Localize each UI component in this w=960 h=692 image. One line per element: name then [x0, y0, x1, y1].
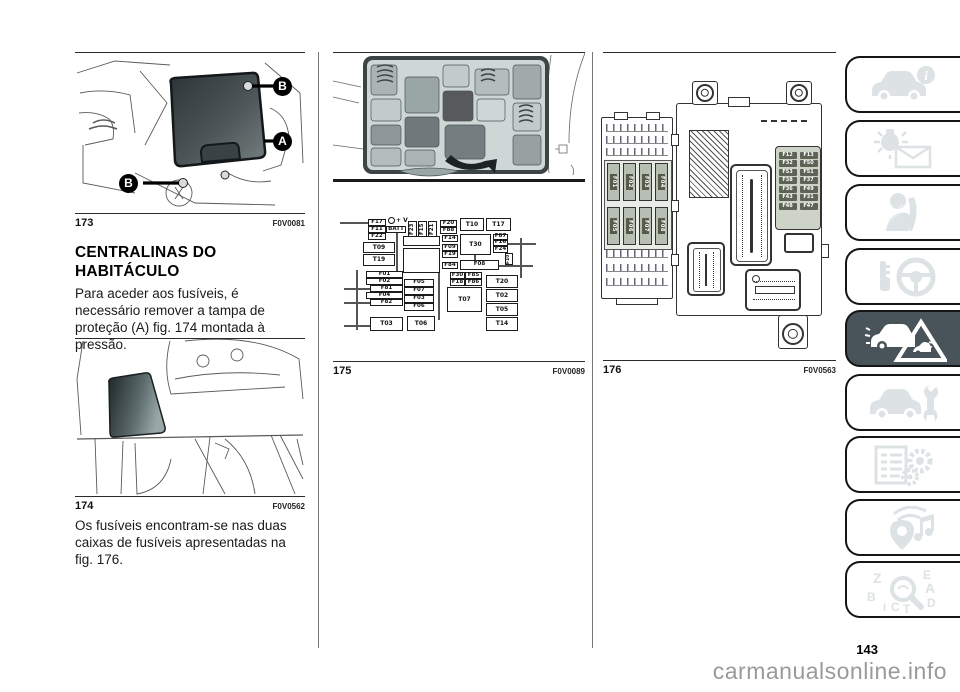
seatbelt-person-icon	[868, 191, 942, 235]
hatched-area	[689, 130, 729, 198]
blank-box-2	[403, 248, 440, 273]
fuse-f85: F85	[465, 272, 482, 279]
relay-t02: T02	[486, 289, 518, 302]
fuse-176-f08: F08	[655, 207, 668, 245]
figure-175-schematic: + V F17 F11 BATT F22 F23 F15 F21 F20 F88…	[352, 212, 534, 342]
svg-text:T: T	[903, 602, 911, 613]
fig175-bottom-rule	[333, 361, 585, 362]
fuse-f12: F12	[779, 152, 797, 159]
fig174-code: F0V0562	[225, 502, 305, 512]
fuse-f84: F84	[442, 262, 458, 269]
fuse-f06: F06	[404, 303, 434, 311]
alphabetical-index-icon: ZE BA IC TD	[865, 567, 945, 613]
fuse-f38: F38	[779, 177, 797, 184]
fuse-f37: F37	[800, 177, 818, 184]
svg-text:I: I	[883, 602, 886, 613]
fig173-code: F0V0081	[225, 219, 305, 229]
fuse-f36: F36	[779, 186, 797, 193]
fig175-photo-bottom-rule	[333, 179, 585, 182]
bottom-connector	[745, 269, 801, 311]
fuse-f31: F31	[800, 194, 818, 201]
relay-t17: T17	[486, 218, 511, 231]
fuse-176-f06: F06	[623, 207, 636, 245]
fuse-f86: F86	[465, 279, 482, 286]
watermark: carmanualsonline.info	[600, 658, 947, 684]
fuse-176-f07: F07	[639, 207, 652, 245]
fuse-176-f05: F05	[607, 207, 620, 245]
fig176-number: 176	[603, 364, 621, 376]
fuse-176-f01: F01	[607, 163, 620, 201]
engine-fusebox-photo	[333, 53, 585, 180]
fuse-f07: F07	[404, 287, 434, 295]
fig173-bottom-rule	[75, 213, 305, 214]
fuse-f08: F08	[460, 260, 499, 270]
relay-t03: T03	[370, 317, 403, 331]
sidebar-tab-multimedia	[845, 499, 960, 556]
figure-175-photo	[333, 53, 585, 180]
fuse-f53: F53	[779, 169, 797, 176]
fuse-f32: F32	[779, 160, 797, 167]
sidebar-tab-emergency	[845, 310, 960, 367]
fuse-f48: F48	[779, 203, 797, 210]
relay-t19: T19	[363, 254, 395, 266]
svg-text:B: B	[867, 590, 876, 604]
sidebar-tab-warning-lights	[845, 120, 960, 177]
fuse-f10: F10	[505, 253, 513, 265]
batt-box: BATT	[386, 226, 406, 233]
column-divider-2	[592, 52, 593, 648]
relay-t10: T10	[460, 218, 484, 231]
figure-176: F01 F02 F03 F04 F05 F06 F07 F08	[600, 53, 836, 359]
svg-text:i: i	[924, 68, 928, 83]
figure-173: B A B	[75, 53, 305, 213]
manual-page: B A B 173 F0V0081 CENTRALINAS DO HABITÁC…	[0, 0, 960, 692]
sidebar-tab-technical-data	[845, 436, 960, 493]
fig174-bottom-rule	[75, 496, 305, 497]
fuse-f30: F30	[450, 272, 465, 279]
fuse-f04: F04	[366, 292, 403, 299]
screw-hole-bottom	[782, 323, 804, 345]
fuse-f14: F14	[442, 235, 458, 242]
relay-t30: T30	[460, 234, 491, 255]
battery-circle-icon	[388, 217, 395, 224]
specs-gears-icon	[868, 443, 942, 487]
car-wrench-icon	[868, 381, 942, 425]
fuse-f17: F17	[368, 219, 386, 226]
fig173-number: 173	[75, 217, 93, 229]
sidebar-tab-index: ZE BA IC TD	[845, 561, 960, 618]
sidebar-tab-safety	[845, 184, 960, 241]
relay-t07: T07	[447, 287, 482, 312]
battery-symbol: + V	[388, 217, 408, 224]
fuse-f20: F20	[440, 220, 457, 227]
svg-text:C: C	[891, 600, 900, 613]
sidebar-tab-maintenance	[845, 374, 960, 431]
central-connector	[730, 164, 772, 266]
fuse-f01: F01	[366, 271, 403, 278]
svg-text:D: D	[927, 596, 936, 610]
fuse-f24: F24	[493, 246, 508, 253]
fig174-number: 174	[75, 500, 93, 512]
sidebar-tab-vehicle-info: i	[845, 56, 960, 113]
fuse-f03: F03	[404, 295, 434, 303]
relay-t20: T20	[486, 275, 518, 288]
fuse-f05: F05	[404, 279, 434, 287]
fuse-f13: F13	[800, 152, 818, 159]
blank-box-1	[403, 236, 440, 246]
fuse-176-f03: F03	[639, 163, 652, 201]
figure-174	[75, 339, 305, 496]
key-steering-icon	[868, 255, 942, 299]
callout-b-top: B	[273, 77, 292, 96]
fuse-f02: F02	[366, 278, 403, 285]
relay-t06: T06	[407, 316, 435, 331]
screw-hole-right	[790, 84, 808, 102]
lights-message-icon	[868, 127, 942, 171]
interior-panel-illustration	[75, 339, 305, 496]
screw-hole-left	[696, 84, 714, 102]
section-heading: CENTRALINAS DO HABITÁCULO	[75, 243, 290, 281]
fuse-panel: F12F13 F32F50 F53F51 F38F37 F36F49 F43F3…	[775, 146, 821, 230]
relay-holder-box: F01 F02 F03 F04 F05 F06 F07 F08	[601, 117, 673, 299]
fuse-f19: F19	[442, 251, 458, 258]
small-connector	[687, 242, 725, 296]
nav-music-icon	[868, 506, 942, 550]
engine-bay-illustration	[75, 53, 305, 213]
relay-t14: T14	[486, 317, 518, 331]
fig175-code: F0V0089	[505, 367, 585, 377]
fuse-f81: F81	[370, 285, 403, 292]
fuse-176-f02: F02	[623, 163, 636, 201]
fuse-f18: F18	[450, 279, 465, 286]
paragraph-2: Os fusíveis encontram-se nas duas caixas…	[75, 517, 307, 568]
fuse-f22: F22	[368, 233, 386, 240]
dashed-strip	[761, 120, 807, 126]
fig176-bottom-rule	[603, 360, 836, 361]
fuse-f09: F09	[442, 244, 458, 251]
emergency-icon	[863, 316, 947, 362]
column-divider-1	[318, 52, 319, 648]
fuse-f11: F11	[368, 226, 386, 233]
fig176-code: F0V0563	[756, 366, 836, 376]
fuse-f88: F88	[440, 227, 457, 234]
fuse-f50: F50	[800, 160, 818, 167]
fig175-number: 175	[333, 365, 351, 377]
callout-a: A	[273, 132, 292, 151]
relay-t09: T09	[363, 242, 395, 253]
svg-text:Z: Z	[873, 570, 882, 586]
page-number: 143	[828, 643, 878, 657]
svg-text:A: A	[925, 580, 935, 596]
fuse-f82: F82	[370, 299, 403, 306]
fuse-f49: F49	[800, 186, 818, 193]
car-info-icon: i	[868, 65, 942, 105]
fuse-f47: F47	[800, 203, 818, 210]
callout-b-bottom: B	[119, 174, 138, 193]
fuse-f43: F43	[779, 194, 797, 201]
sidebar-tab-starting-driving	[845, 248, 960, 305]
body-computer-box: F12F13 F32F50 F53F51 F38F37 F36F49 F43F3…	[676, 103, 822, 316]
fuse-f51: F51	[800, 169, 818, 176]
fuse-176-f04: F04	[655, 163, 668, 201]
relay-t05: T05	[486, 303, 518, 316]
protection-panel	[109, 373, 165, 437]
